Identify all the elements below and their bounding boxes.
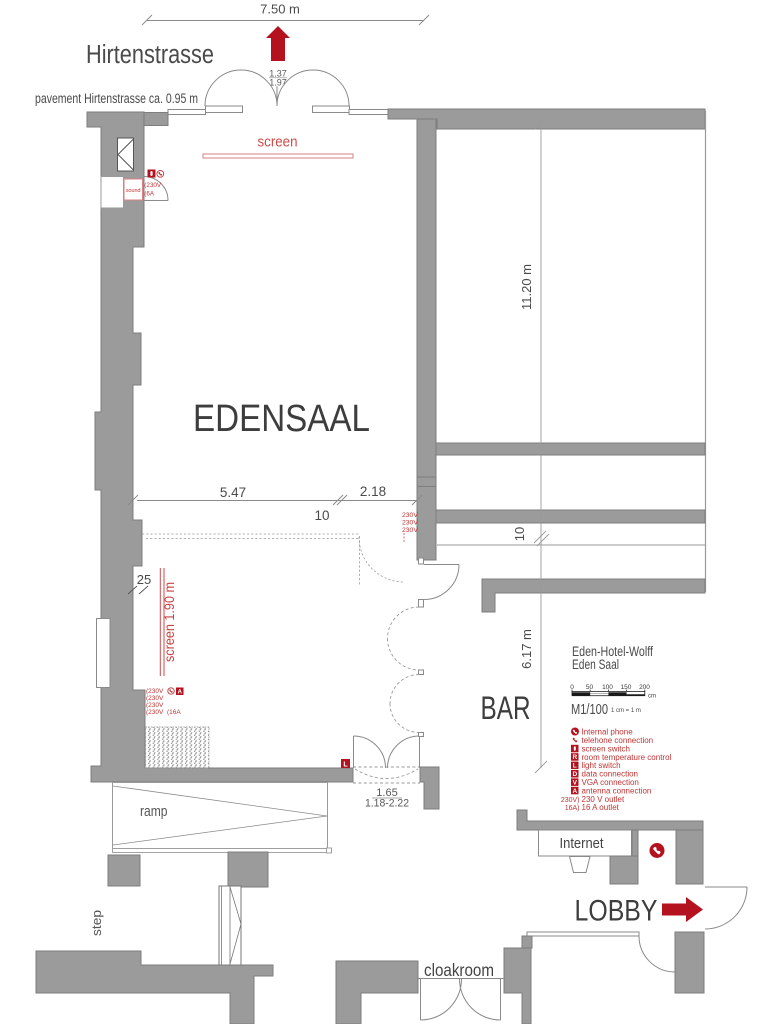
svg-text:M1/100: M1/100 [571, 702, 608, 718]
svg-text:Hirtenstrasse: Hirtenstrasse [86, 41, 214, 69]
svg-text:(230V: (230V [146, 695, 164, 702]
svg-text:EDENSAAL: EDENSAAL [193, 398, 370, 440]
svg-text:230V: 230V [402, 527, 418, 534]
svg-text:Internet: Internet [560, 835, 605, 852]
svg-text:2.18: 2.18 [360, 484, 386, 499]
svg-text:100: 100 [602, 684, 613, 691]
svg-text:(230V: (230V [146, 709, 164, 716]
svg-text:(230V: (230V [146, 702, 164, 709]
svg-text:A: A [572, 788, 577, 795]
svg-text:LOBBY: LOBBY [575, 895, 658, 928]
svg-text:ramp: ramp [140, 804, 168, 820]
svg-text:1.97: 1.97 [269, 78, 287, 88]
svg-text:230V: 230V [402, 512, 418, 519]
svg-text:11.20 m: 11.20 m [519, 264, 534, 310]
svg-text:16A): 16A) [565, 805, 580, 812]
svg-text:R: R [572, 754, 577, 761]
svg-text:V: V [573, 779, 578, 786]
svg-text:cloakroom: cloakroom [424, 960, 494, 980]
svg-text:screen 1.90 m: screen 1.90 m [161, 582, 177, 662]
svg-text:step: step [89, 910, 104, 936]
svg-text:(230V: (230V [144, 182, 162, 189]
svg-text:cm: cm [648, 694, 656, 700]
svg-text:50: 50 [586, 684, 594, 691]
svg-text:D: D [572, 771, 577, 778]
svg-text:L: L [573, 763, 577, 770]
svg-text:230V: 230V [402, 520, 418, 527]
svg-text:10: 10 [314, 508, 329, 523]
svg-text:10: 10 [512, 527, 527, 541]
svg-text:1.18-2.22: 1.18-2.22 [365, 798, 409, 810]
svg-text:16 A outlet: 16 A outlet [582, 803, 620, 812]
svg-text:6.17 m: 6.17 m [519, 629, 534, 669]
svg-text:1 cm = 1 m: 1 cm = 1 m [611, 708, 641, 714]
svg-text:screen: screen [258, 135, 298, 151]
svg-text:A: A [178, 690, 183, 696]
svg-text:(6A: (6A [144, 190, 155, 197]
svg-text:150: 150 [621, 684, 632, 691]
svg-text:Eden Saal: Eden Saal [572, 657, 619, 672]
svg-text:230V): 230V) [561, 797, 580, 804]
svg-text:pavement Hirtenstrasse ca. 0.9: pavement Hirtenstrasse ca. 0.95 m [35, 91, 198, 106]
svg-text:L: L [343, 762, 348, 769]
svg-text:5.47: 5.47 [220, 485, 246, 500]
svg-text:BAR: BAR [481, 690, 531, 726]
svg-text:(230V: (230V [146, 688, 164, 695]
svg-text:25: 25 [137, 572, 151, 587]
svg-text:(16A: (16A [167, 709, 181, 716]
svg-text:sound: sound [126, 188, 141, 194]
svg-text:7.50 m: 7.50 m [260, 2, 300, 17]
